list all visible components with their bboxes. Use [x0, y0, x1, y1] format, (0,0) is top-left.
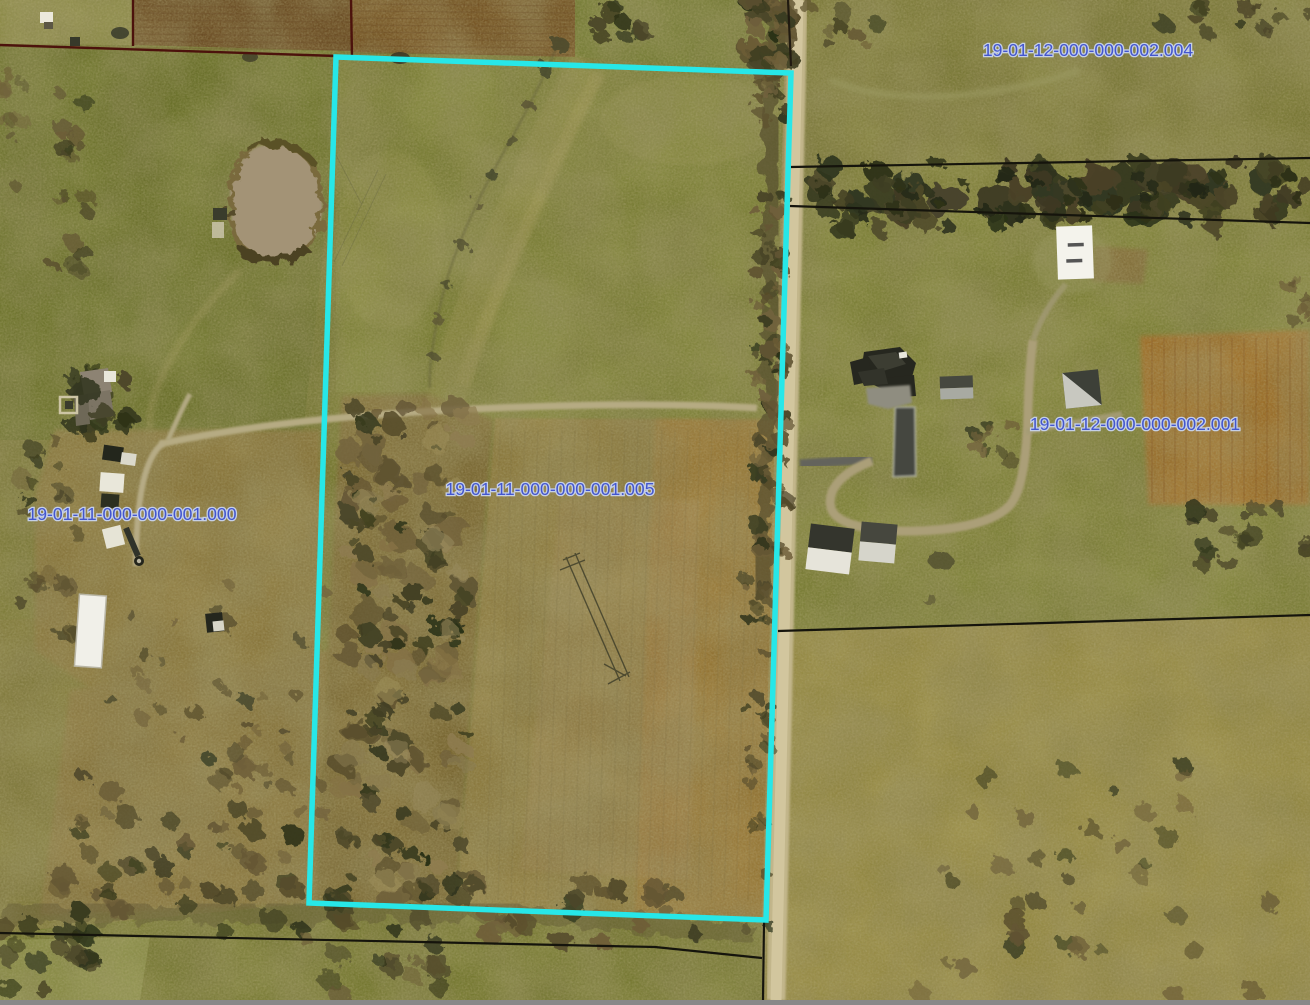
- svg-text:19-01-11-000-000-001.000: 19-01-11-000-000-001.000: [27, 504, 236, 524]
- svg-text:19-01-12-000-000-002.001: 19-01-12-000-000-002.001: [1030, 414, 1240, 434]
- svg-text:19-01-12-000-000-002.004: 19-01-12-000-000-002.004: [983, 40, 1194, 60]
- svg-text:19-01-11-000-000-001.005: 19-01-11-000-000-001.005: [445, 479, 654, 499]
